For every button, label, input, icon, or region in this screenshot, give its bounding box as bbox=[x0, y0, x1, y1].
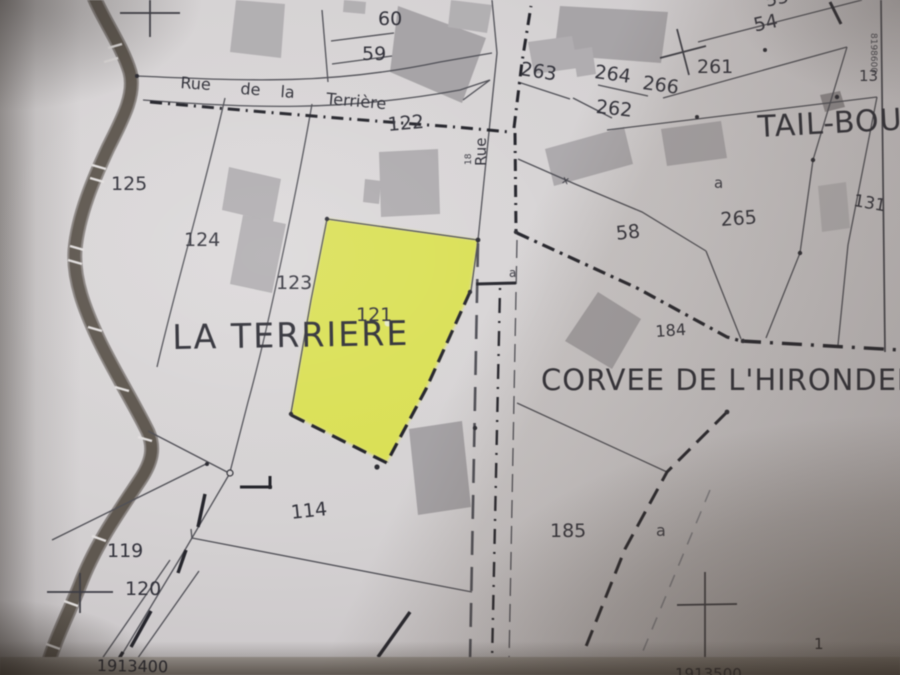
subdivision-letter: a bbox=[714, 176, 723, 191]
subdivision-letter: a bbox=[509, 267, 516, 279]
parcel-number: 60 bbox=[378, 10, 402, 29]
parcel-number: 185 bbox=[550, 522, 586, 541]
street-label: Rue bbox=[180, 75, 211, 93]
parcel-number: 58 bbox=[615, 222, 641, 243]
parcel-number: 114 bbox=[290, 500, 328, 523]
parcel-number: 123 bbox=[276, 274, 312, 293]
parcel-number: 266 bbox=[641, 74, 680, 98]
grid-coordinate-left: 1913400 bbox=[97, 658, 169, 675]
cadastral-map-photo: 6059263264266262261545313122125124123121… bbox=[0, 0, 900, 675]
locality-corvee: CORVEE DE L'HIRONDEL bbox=[541, 366, 900, 395]
parcel-number: 59 bbox=[362, 45, 386, 64]
parcel-number: 261 bbox=[697, 58, 733, 77]
scale-fragment: 1 bbox=[814, 637, 824, 652]
parcel-number: 54 bbox=[752, 12, 780, 36]
parcel-number: 125 bbox=[111, 175, 147, 194]
parcel-number: 263 bbox=[519, 60, 558, 84]
parcel-number: 265 bbox=[720, 208, 758, 229]
grid-coordinate-right: 1913500 bbox=[675, 667, 742, 675]
parcel-number: 124 bbox=[184, 231, 220, 250]
stream-band bbox=[45, 0, 152, 675]
street-label: la bbox=[280, 84, 295, 101]
footpath-dashed bbox=[638, 490, 710, 663]
parcel-number: 264 bbox=[593, 63, 632, 87]
parcel-number: 122 bbox=[387, 113, 425, 135]
parcel-number: 262 bbox=[595, 98, 633, 121]
grid-coordinate-vertical: 8198600 bbox=[868, 33, 877, 73]
parcel-number: 184 bbox=[655, 322, 687, 340]
subdivision-letter: a bbox=[656, 523, 666, 539]
street-label: de bbox=[240, 81, 261, 98]
parcel-number: 119 bbox=[107, 542, 143, 561]
locality-tail-boui: TAIL-BOUI bbox=[757, 105, 900, 143]
map-linework bbox=[0, 0, 900, 675]
map-ink-layer: 6059263264266262261545313122125124123121… bbox=[0, 0, 900, 675]
locality-la-terriere: LA TERRIERE bbox=[172, 317, 410, 355]
street-label: Rue bbox=[474, 138, 489, 166]
parcel-number: 120 bbox=[125, 580, 161, 599]
